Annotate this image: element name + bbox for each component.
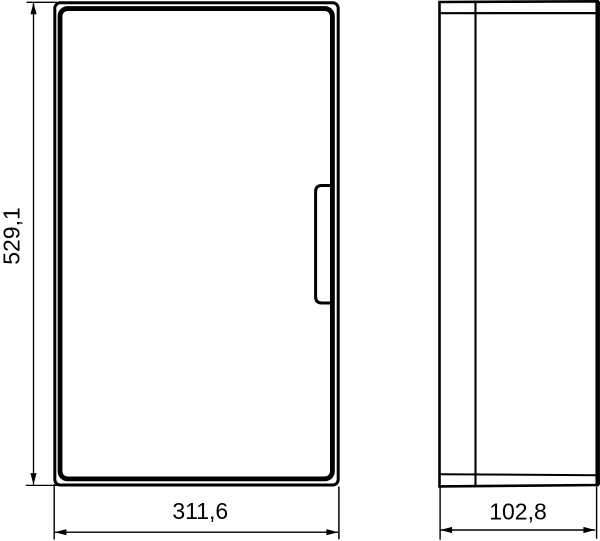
svg-text:529,1: 529,1 <box>0 207 25 265</box>
svg-text:311,6: 311,6 <box>172 498 228 524</box>
svg-text:102,8: 102,8 <box>489 499 547 525</box>
